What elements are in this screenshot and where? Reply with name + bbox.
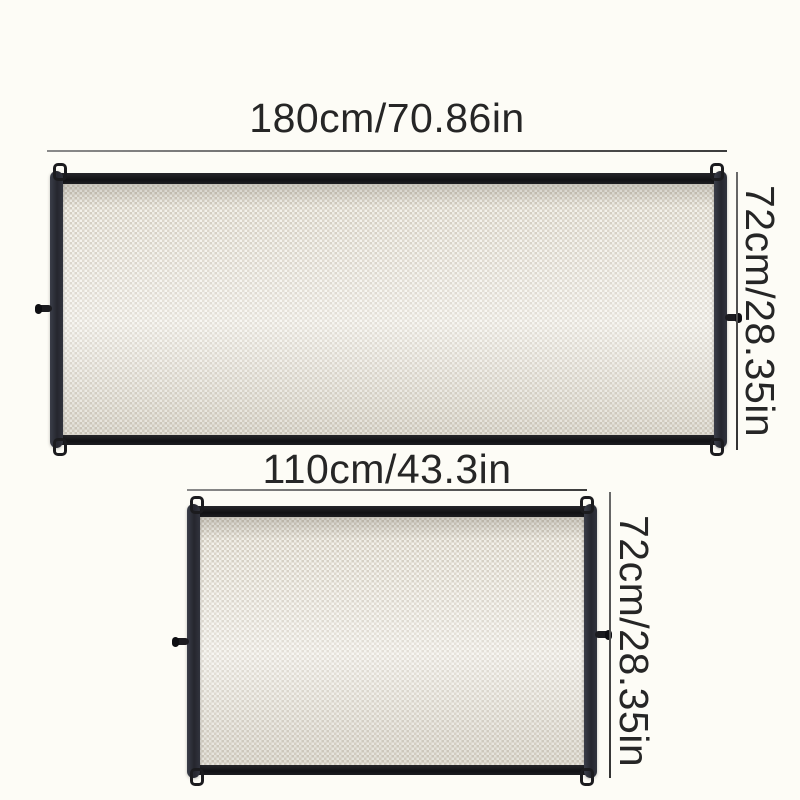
mounting-pin-left	[174, 638, 189, 645]
large-gate-left-bar	[50, 171, 63, 448]
small-gate-height-label: 72cm/28.35in	[613, 504, 654, 778]
mounting-pin-right	[595, 631, 610, 638]
small-gate-width-dimension-line	[187, 489, 587, 491]
corner-hook-ring	[580, 768, 594, 786]
corner-hook-ring	[710, 163, 724, 181]
corner-hook-ring	[190, 768, 204, 786]
large-gate-panel	[50, 171, 727, 448]
small-gate-right-bar	[584, 504, 597, 778]
small-gate-mesh	[199, 515, 585, 767]
corner-hook-ring	[580, 496, 594, 514]
large-gate-height-label: 72cm/28.35in	[739, 172, 780, 450]
corner-hook-ring	[710, 438, 724, 456]
corner-hook-ring	[53, 163, 67, 181]
small-gate-top-bar	[191, 506, 593, 517]
small-gate-width-label: 110cm/43.3in	[187, 448, 587, 491]
small-gate-bottom-bar	[191, 765, 593, 775]
corner-hook-ring	[53, 438, 67, 456]
small-gate-panel	[187, 504, 597, 778]
large-gate-mesh	[62, 182, 715, 437]
large-gate-width-label: 180cm/70.86in	[47, 97, 727, 140]
large-gate-width-dimension-line	[47, 150, 727, 152]
large-gate-bottom-bar	[54, 435, 723, 445]
product-dimension-diagram: 180cm/70.86in 72cm/28.35in 110cm/43.3in …	[0, 0, 800, 800]
large-gate-top-bar	[54, 173, 723, 184]
corner-hook-ring	[190, 496, 204, 514]
mounting-pin-left	[37, 305, 52, 312]
large-gate-right-bar	[714, 171, 727, 448]
